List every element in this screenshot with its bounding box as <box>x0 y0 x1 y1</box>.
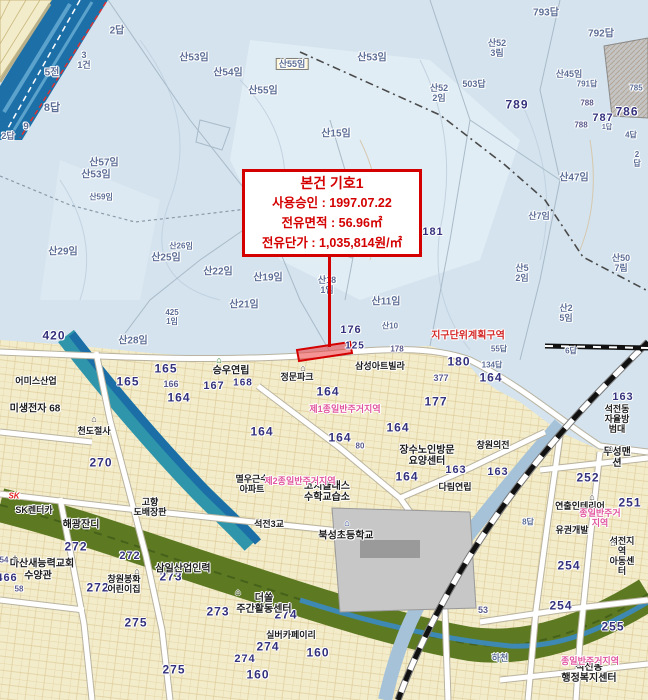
map-label: 163 <box>612 391 633 403</box>
map-label: 산55임 <box>276 58 309 70</box>
map-label: 252 <box>576 471 599 484</box>
map-label: SK렌터카 <box>15 505 52 515</box>
map-label: 164 <box>167 391 190 404</box>
map-label: 273 <box>159 570 182 583</box>
map-label: 석전3교 <box>254 519 284 529</box>
map-label: 80 <box>356 443 365 452</box>
map-label: 54 <box>0 557 8 566</box>
map-label: 산15임 <box>321 128 351 139</box>
map-label: SK <box>8 493 19 502</box>
map-label: 466 <box>0 572 18 584</box>
map-label: 275 <box>124 616 147 629</box>
map-label: 181 <box>422 226 443 238</box>
map-label: 무성맨션 <box>602 447 633 469</box>
map-label: 석전동 자율방범대 <box>602 404 633 434</box>
map-label: 420 <box>42 329 65 342</box>
map-label: 삼성아트빌라 <box>355 361 405 371</box>
building-icon: ⌂ <box>216 355 221 365</box>
map-labels-layer: 2답3 1건5전8답92답산53임산54임산55임산55임산15임산57임산53… <box>0 0 648 700</box>
map-label: 1답 <box>602 124 612 132</box>
map-label: 272 <box>64 540 87 553</box>
map-label: 산53임 <box>357 52 387 63</box>
map-label: 산2 5임 <box>559 303 572 323</box>
map-label: 산59임 <box>89 194 113 203</box>
map-label: 제2종일반주거지역 <box>264 476 335 486</box>
map-label: 마산새능력교회 <box>10 558 74 569</box>
map-label: 석전동 행정복지센터 <box>561 662 616 684</box>
map-label: 785 <box>629 85 642 94</box>
map-label: 산5 2임 <box>515 263 528 283</box>
map-label: 791답 <box>577 81 598 90</box>
map-label: 164 <box>250 425 273 438</box>
building-icon: ⌂ <box>589 492 594 502</box>
map-label: 166 <box>163 379 178 389</box>
map-label: 산25임 <box>151 252 181 263</box>
map-label: 산57임 <box>89 157 119 168</box>
map-label: 2답 <box>1 131 14 141</box>
map-label: 3 1건 <box>77 50 90 70</box>
map-label: 승우연립 <box>213 365 250 376</box>
map-label: 274 <box>256 640 279 653</box>
map-label: 177 <box>424 395 447 408</box>
map-label: 4답 <box>625 132 637 141</box>
map-label: 삼일산업인력 <box>155 563 210 574</box>
annotation-unit-price: 전유단가 : 1,035,814원/㎡ <box>262 233 402 253</box>
map-label: 503답 <box>462 79 485 89</box>
map-label: 786 <box>615 105 638 118</box>
map-label: 160 <box>306 646 329 659</box>
map-label: 산54임 <box>213 67 243 78</box>
map-label: 천도절사 <box>77 426 110 436</box>
map-label: 789 <box>505 98 528 111</box>
map-label: 실버카페이리 <box>266 630 316 640</box>
map-label: 176 <box>340 324 361 336</box>
map-label: 165 <box>116 375 139 388</box>
building-icon: ⌂ <box>300 363 305 373</box>
map-label: 창원의전 <box>476 440 509 450</box>
map-label: 창원봉화 어린이집 <box>107 574 140 594</box>
map-label: 272 <box>119 550 140 562</box>
map-label: 북성초등학교 <box>318 530 373 541</box>
map-label: 255 <box>601 620 624 633</box>
map-label: 산7임 <box>528 211 550 221</box>
map-label: 425 1임 <box>165 309 178 327</box>
building-icon: ⌂ <box>610 538 615 548</box>
map-label: 산10 <box>382 323 398 332</box>
map-label: 석전지역 아동센터 <box>609 536 635 576</box>
map-label: 어미스산업 <box>15 376 56 386</box>
map-label: 산19임 <box>253 272 283 283</box>
map-label: 272 <box>86 581 109 594</box>
map-label: 275 <box>162 663 185 676</box>
map-label: 164 <box>316 385 339 398</box>
annotation-exclusive-area: 전유면적 : 56.96㎡ <box>282 213 383 233</box>
church-icon: † <box>12 554 17 564</box>
map-label: 377 <box>433 373 448 383</box>
map-label: 종일반주거지역 <box>576 508 624 528</box>
map-label: 연출인테리어 <box>555 501 605 511</box>
map-label: 6답 <box>565 348 577 357</box>
map-label: 산45임 <box>556 69 583 79</box>
map-label: 2답 <box>110 25 125 36</box>
map-label: 8답 <box>44 102 60 114</box>
map-label: 167 <box>203 380 224 392</box>
map-label: 산11임 <box>372 296 401 307</box>
map-label: 해광잔디 <box>63 519 100 530</box>
map-label: 산21임 <box>229 299 259 310</box>
map-label: 180 <box>447 355 470 368</box>
map-label: 산52 3림 <box>488 38 506 58</box>
map-label: 산26임 <box>169 243 193 252</box>
map-label: 53 <box>478 605 488 615</box>
map-label: 164 <box>386 421 409 434</box>
map-label: 산50 7림 <box>612 253 630 273</box>
map-label: 다림연립 <box>438 482 471 492</box>
map-label: 유권개발 <box>555 525 588 535</box>
map-label: 미생전자 68 <box>10 403 61 414</box>
map-label: 164 <box>479 371 502 384</box>
map-label: 제1종일반주거지역 <box>309 404 380 414</box>
map-label: 산22임 <box>203 266 233 277</box>
map-label: 164 <box>395 470 418 483</box>
map-label: 수양관 <box>24 570 52 581</box>
map-label: 산52 2임 <box>430 83 448 103</box>
map-label: 168 <box>233 377 253 388</box>
map-label: 산53임 <box>81 169 111 180</box>
map-label: 55답 <box>491 346 507 355</box>
building-icon: ⌂ <box>91 414 96 424</box>
map-label: 산28임 <box>118 335 148 346</box>
map-label: 788 <box>574 122 587 131</box>
map-label: 165 <box>154 362 177 375</box>
map-label: 254 <box>549 599 572 612</box>
map-label: 코치클래스 수학교습소 <box>304 481 350 503</box>
map-label: 산53임 <box>179 52 209 63</box>
map-label: 164 <box>328 431 351 444</box>
map-label: 163 <box>487 466 508 478</box>
map-label: 251 <box>618 496 641 509</box>
map-label: 산47임 <box>559 172 589 183</box>
map-label: 정문파크 <box>280 372 313 382</box>
map-label: 254 <box>557 559 580 572</box>
school-icon: ⌂ <box>344 518 349 528</box>
map-label: 장수노인방문 요양센터 <box>399 445 454 467</box>
map-label: 274 <box>274 608 297 621</box>
map-label: 지구단위계획구역 <box>431 330 505 341</box>
map-label: 58 <box>15 586 24 595</box>
annotation-approval-date: 사용승인 : 1997.07.22 <box>272 193 392 213</box>
map-label: 125 <box>345 340 365 351</box>
map-label: 160 <box>246 668 269 681</box>
map-label: 산18 1임 <box>318 275 336 295</box>
annotation-box[interactable]: 본건 기호1 사용승인 : 1997.07.22 전유면적 : 56.96㎡ 전… <box>242 169 422 257</box>
map-label: 274 <box>234 653 255 665</box>
map-label: 9 <box>23 121 29 132</box>
map-label: 273 <box>206 605 229 618</box>
map-label: 산29임 <box>48 246 78 257</box>
building-icon: ⌂ <box>235 587 240 597</box>
map-label: 792답 <box>588 28 614 39</box>
map-label: 산55임 <box>248 85 278 96</box>
map-label: 270 <box>89 456 112 469</box>
building-icon: ⌂ <box>608 443 613 453</box>
map-label: 8답 <box>522 519 534 528</box>
map-label: 하천 <box>492 653 509 663</box>
map-label: 2답 <box>632 151 643 169</box>
map-label: 178 <box>390 346 403 355</box>
map-label: 134답 <box>482 362 503 371</box>
cadastral-map: 2답3 1건5전8답92답산53임산54임산55임산55임산15임산57임산53… <box>0 0 648 700</box>
map-label: 787 <box>592 112 613 124</box>
map-label: 멸우근수 아파트 <box>235 474 268 494</box>
map-label: 고향 도배장판 <box>133 497 166 517</box>
map-label: 788 <box>580 100 593 109</box>
map-label: 더쏠 주간활동센터 <box>236 593 291 615</box>
annotation-title: 본건 기호1 <box>300 173 363 193</box>
map-label: 163 <box>445 464 466 476</box>
map-label: 5전 <box>45 67 60 78</box>
annotation-leader-line <box>328 257 331 347</box>
map-label: 793답 <box>533 7 559 18</box>
map-label: 종일반주거지역 <box>561 656 619 666</box>
building-icon: ⌂ <box>134 566 139 576</box>
